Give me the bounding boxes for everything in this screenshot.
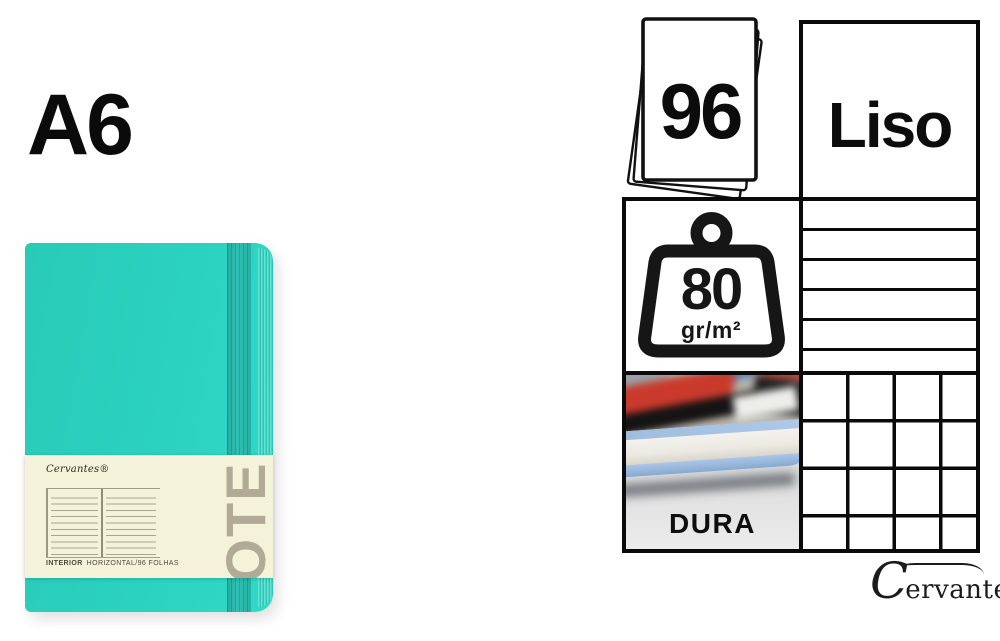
ruled-lines [803, 201, 976, 371]
label-caption: INTERIORHORIZONTAL/96 FOLHAS [46, 560, 179, 567]
label-caption-rest: HORIZONTAL/96 FOLHAS [87, 560, 179, 567]
paper-weight-unit: gr/m² [681, 317, 741, 343]
weight-icon: 80 gr/m² [626, 201, 799, 371]
diagram-right-page [106, 492, 156, 555]
paper-style-label: Liso [828, 88, 952, 162]
grid-paper-panel [799, 371, 980, 553]
brand-logo: Cervantes® [870, 556, 998, 612]
weight-ring-icon [697, 218, 727, 248]
spec-box-cover-type: DURA [622, 371, 803, 553]
ruled-paper-panel [799, 197, 980, 375]
sheet-count-icon: 96 [616, 10, 796, 210]
grid-lines [803, 375, 976, 549]
cover-type-label: DURA [626, 508, 799, 540]
spec-box-paper-style: Liso [799, 20, 980, 201]
spec-box-paper-weight: 80 gr/m² [622, 197, 803, 375]
note-watermark: NOTE [216, 455, 273, 578]
hardcover-book [622, 371, 803, 490]
diagram-center-divider [101, 489, 103, 557]
interior-ruling-diagram [46, 488, 160, 558]
paper-weight-value: 80 [681, 257, 742, 322]
sheet-count-value: 96 [660, 67, 741, 155]
diagram-left-page [51, 492, 98, 555]
page-title: A6 [27, 82, 131, 168]
label-brand-logo: Cervantes® [46, 464, 109, 475]
notebook-photo: Cervantes® INTERIORHORIZONTAL/96 FOLHAS … [25, 243, 273, 612]
hardcover-photo: DURA [626, 375, 799, 549]
brand-initial: C [870, 556, 908, 606]
belly-band-label: Cervantes® INTERIORHORIZONTAL/96 FOLHAS … [25, 455, 273, 578]
diagram-left-border [46, 489, 48, 557]
label-caption-bold: INTERIOR [46, 560, 83, 567]
product-spec-sheet: A6 Cervantes® INTERIORHORIZONTAL/96 FOLH… [0, 0, 1000, 641]
brand-name: ervantes [905, 575, 1000, 605]
